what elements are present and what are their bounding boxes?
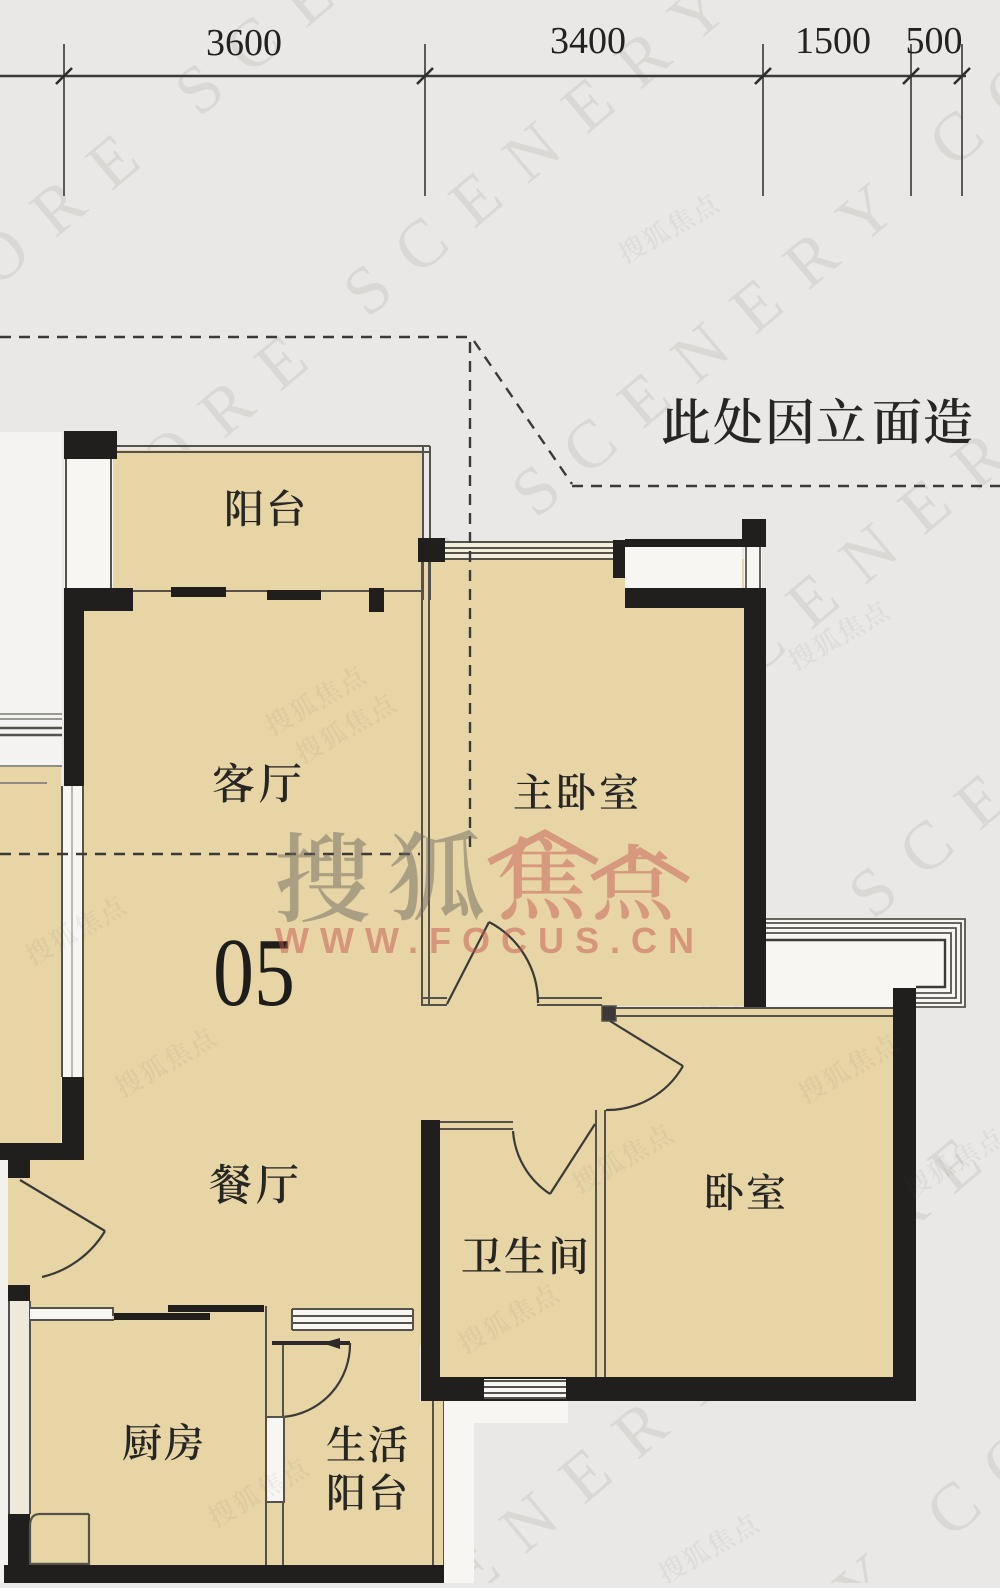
svg-text:500: 500 — [906, 20, 963, 62]
svg-text:1500: 1500 — [795, 20, 871, 62]
svg-text:WWW.FOCUS.CN: WWW.FOCUS.CN — [275, 920, 705, 961]
svg-text:3600: 3600 — [206, 22, 282, 64]
svg-text:3400: 3400 — [550, 20, 626, 62]
